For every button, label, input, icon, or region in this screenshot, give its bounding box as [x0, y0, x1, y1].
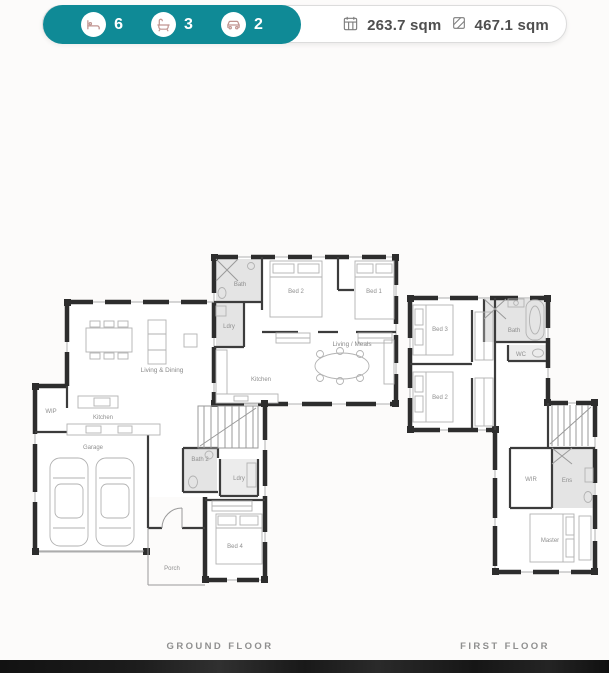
room-label-ens: Ens [562, 478, 572, 484]
room-label-wir: WIR [525, 477, 537, 483]
room-label-living-dining: Living & Dining [141, 367, 184, 374]
room-label-flat-bed1: Bed 1 [366, 289, 382, 295]
room-label-flat-bath: Bath [234, 282, 246, 288]
room-label-bed4: Bed 4 [227, 544, 243, 550]
first-floor-caption: FIRST FLOOR [425, 641, 585, 652]
room-label-flat-kitchen: Kitchen [251, 377, 271, 383]
room-label-bath: Bath [508, 328, 520, 334]
room-label-wip: WIP [45, 409, 56, 415]
room-label-bath2: Bath 2 [191, 457, 209, 463]
room-label-bed2: Bed 2 [432, 395, 448, 401]
room-label-bed3: Bed 3 [432, 327, 448, 333]
room-label-porch: Porch [164, 566, 180, 572]
first-floor-plan: Bed 3 Bed 2 Bath WC WIR Ens Master [407, 295, 598, 575]
ground-floor-plan: Bath Bed 2 Bed 1 Ldry Kitchen Living / M… [32, 254, 399, 585]
bottom-bar [0, 660, 609, 673]
room-label-wc: WC [516, 352, 527, 358]
ground-floor-caption: GROUND FLOOR [130, 641, 310, 652]
room-label-ldry: Ldry [233, 476, 245, 482]
room-label-flat-ldry: Ldry [223, 324, 235, 330]
floorplan-image: Bath Bed 2 Bed 1 Ldry Kitchen Living / M… [0, 0, 609, 673]
room-label-master: Master [541, 538, 559, 544]
room-label-garage: Garage [83, 445, 104, 451]
room-label-kitchen: Kitchen [93, 415, 113, 421]
room-label-flat-living: Living / Meals [332, 341, 371, 348]
room-label-flat-bed2: Bed 2 [288, 289, 304, 295]
